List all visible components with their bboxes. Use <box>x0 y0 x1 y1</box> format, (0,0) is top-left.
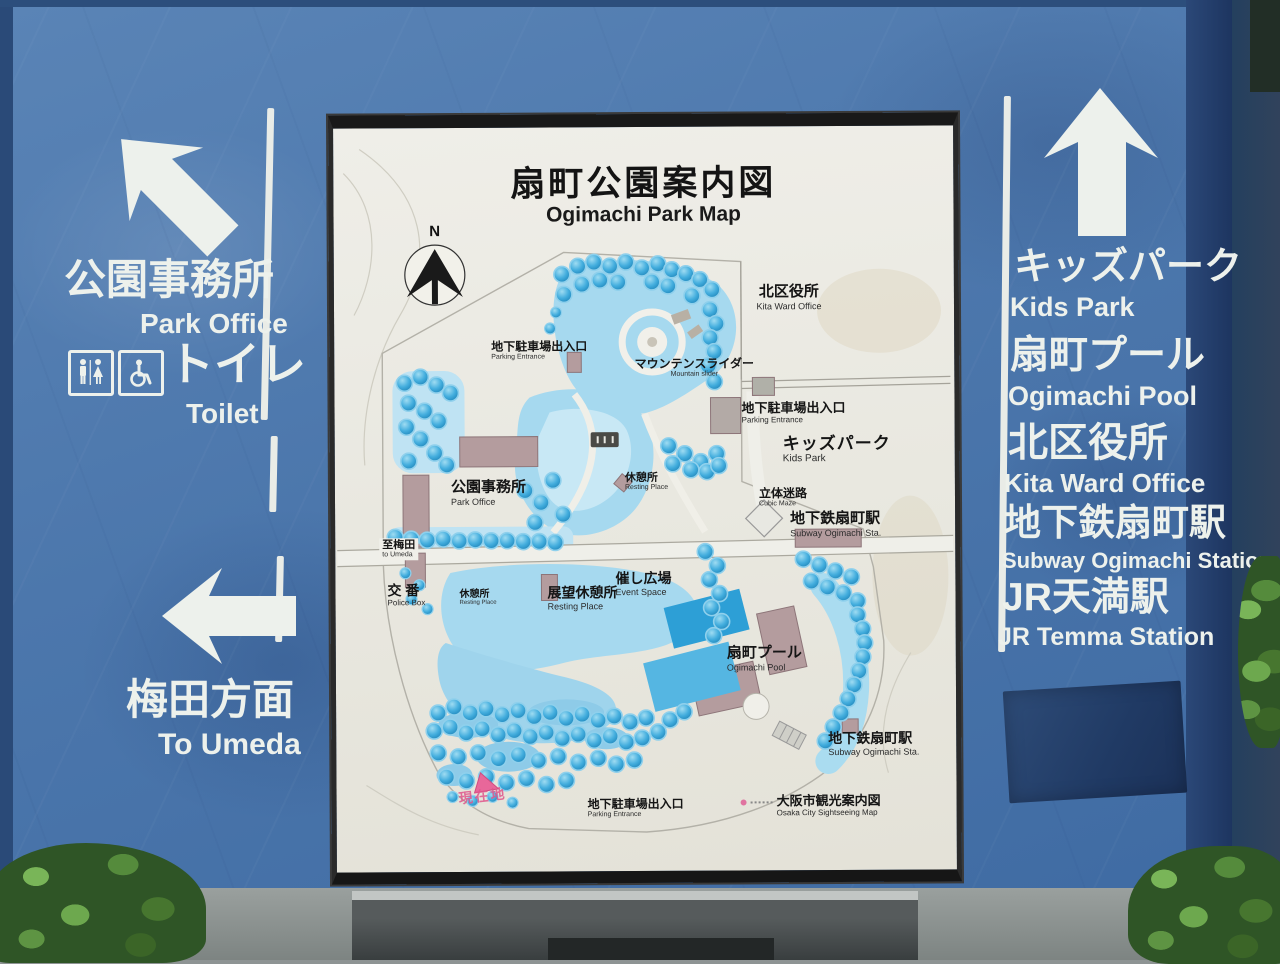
map-label-kita-ward: 北区役所 Kita Ward Office <box>724 284 854 312</box>
map-label-to-umeda: 至梅田 to Umeda <box>379 538 418 560</box>
compass-north-label: N <box>420 223 450 240</box>
left-park-office-jp: 公園事務所 <box>64 258 274 302</box>
board-edge-top <box>0 0 1280 7</box>
map-label-police-box: 交 番 Police Box <box>387 583 425 608</box>
wheelchair-icon <box>118 350 164 396</box>
right-subway-jp: 地下鉄扇町駅 <box>1004 504 1272 543</box>
map-label-rest-lower: 休憩所 Resting Place <box>459 589 496 607</box>
right-item-jr-temma: JR天満駅 JR Temma Station <box>1002 578 1214 652</box>
right-item-subway: 地下鉄扇町駅 Subway Ogimachi Station <box>1004 504 1272 574</box>
map-label-subway-upper: 地下鉄扇町駅 Subway Ogimachi Sta. <box>790 511 881 538</box>
right-kita-ward-en: Kita Ward Office <box>1004 468 1205 499</box>
legend-dash-icon <box>751 801 773 803</box>
right-item-kids-park: キッズパーク Kids Park <box>1014 248 1242 323</box>
board-edge-left <box>0 0 13 898</box>
dark-top-right-corner <box>1250 0 1280 92</box>
left-umeda-en: To Umeda <box>158 728 301 762</box>
map-label-parking-nw: 地下駐車場出入口 Parking Entrance <box>491 340 587 362</box>
right-kita-ward-jp: 北区役所 <box>1008 422 1205 464</box>
right-pool-jp: 扇町プール <box>1010 336 1205 377</box>
right-jr-temma-en: JR Temma Station <box>998 623 1214 652</box>
map-legend: 大阪市観光案内図 Osaka City Sightseeing Map <box>741 794 881 818</box>
map-label-cubic-maze: 立体迷路 Cubic Maze <box>759 487 807 509</box>
map-label-park-office: 公園事務所 Park Office <box>451 480 526 507</box>
map-label-rest-upper: 休憩所 Resting Place <box>625 472 668 492</box>
restroom-icon <box>68 350 114 396</box>
map-label-parking-center: 地下駐車場出入口 Parking Entrance <box>741 401 845 425</box>
left-toilet-en: Toilet <box>186 398 259 430</box>
arrow-left-icon <box>160 556 300 676</box>
map-label-subway-lower: 地下鉄扇町駅 Subway Ogimachi Sta. <box>828 731 919 757</box>
left-toilet-jp: トイレ <box>168 340 306 388</box>
right-jr-temma-jp: JR天満駅 <box>1002 578 1214 619</box>
right-pool-en: Ogimachi Pool <box>1008 381 1205 412</box>
arrow-up-left-icon <box>98 116 246 264</box>
right-item-kita-ward: 北区役所 Kita Ward Office <box>1008 422 1205 499</box>
map-panel: 扇町公園案内図 Ogimachi Park Map N 北区役所 Kita Wa… <box>328 112 962 884</box>
map-label-mountain-slider: マウンテンスライダー Mountain slider <box>584 357 804 379</box>
arrow-up-icon <box>1030 86 1170 238</box>
right-kids-park-jp: キッズパーク <box>1014 248 1242 288</box>
pedestal-step <box>548 938 774 960</box>
right-kids-park-en: Kids Park <box>1010 292 1242 323</box>
legend-en: Osaka City Sightseeing Map <box>777 808 881 817</box>
map-label-kids-park: キッズパーク Kids Park <box>783 434 891 465</box>
map-label-pool: 扇町プール Ogimachi Pool <box>727 645 802 672</box>
tape-patch <box>1003 681 1188 804</box>
map-label-lookout-rest: 展望休憩所 Resting Place <box>547 585 617 611</box>
map-label-event-space: 催し広場 Event Space <box>615 571 671 597</box>
foliage-right-edge <box>1238 556 1280 748</box>
left-umeda-jp: 梅田方面 <box>126 678 294 722</box>
map-title-jp: 扇町公園案内図 <box>333 153 953 207</box>
legend-dot-icon <box>741 799 747 805</box>
park-sign-photo: 公園事務所 Park Office トイレ Toilet 梅田方面 To Ume… <box>0 0 1280 960</box>
legend-jp: 大阪市観光案内図 <box>777 794 881 809</box>
right-subway-en: Subway Ogimachi Station <box>1002 548 1272 574</box>
board-edge-far-right <box>1232 0 1280 898</box>
right-item-ogimachi-pool: 扇町プール Ogimachi Pool <box>1010 336 1205 412</box>
left-park-office-en: Park Office <box>140 308 288 340</box>
map-label-parking-south: 地下駐車場出入口 Parking Entrance <box>588 798 684 820</box>
